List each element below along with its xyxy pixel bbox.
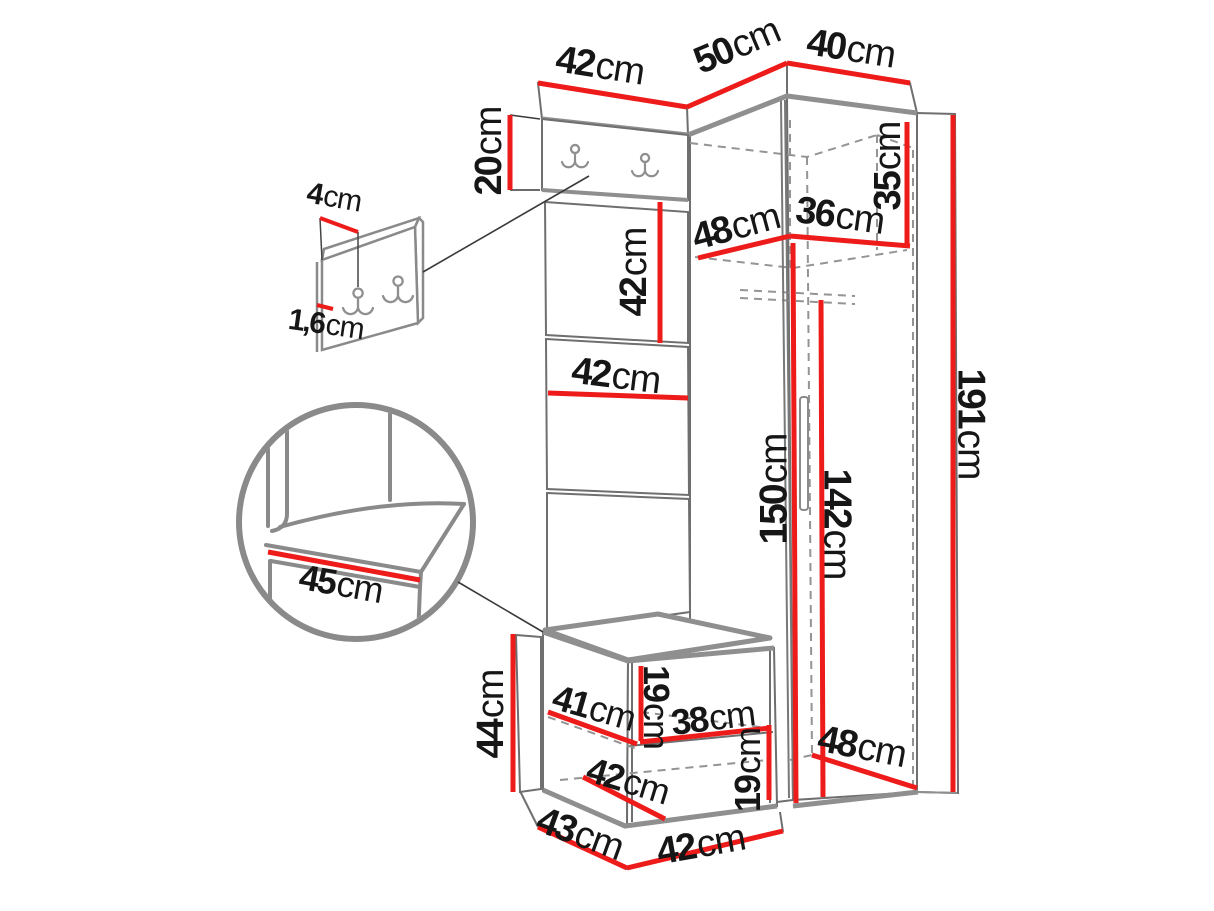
dimension-line-bench-depth bbox=[538, 827, 627, 868]
seat-detail-circle bbox=[239, 405, 473, 639]
dimension-line-detail-hook-offset bbox=[320, 218, 358, 232]
dimension-line-hanging-space-height bbox=[821, 300, 823, 797]
furniture-dimension-diagram: 42cm50cm40cm20cm4cm1,6cm42cm42cm48cm36cm… bbox=[0, 0, 1214, 911]
dimension-line-interior-height bbox=[793, 243, 796, 803]
upholstered-panel-2 bbox=[546, 339, 689, 495]
dimension-line-bench-width bbox=[627, 831, 783, 868]
bench-left-panel bbox=[516, 635, 541, 792]
hook-panel-detail bbox=[317, 218, 423, 352]
wardrobe-door-handle bbox=[800, 397, 808, 510]
diagram-drawing bbox=[0, 0, 1214, 911]
upholstered-panel-3 bbox=[547, 493, 690, 632]
leader-to-bench bbox=[458, 582, 543, 632]
upholstered-panel-1 bbox=[545, 202, 688, 343]
dim-extension-top bbox=[510, 115, 540, 119]
